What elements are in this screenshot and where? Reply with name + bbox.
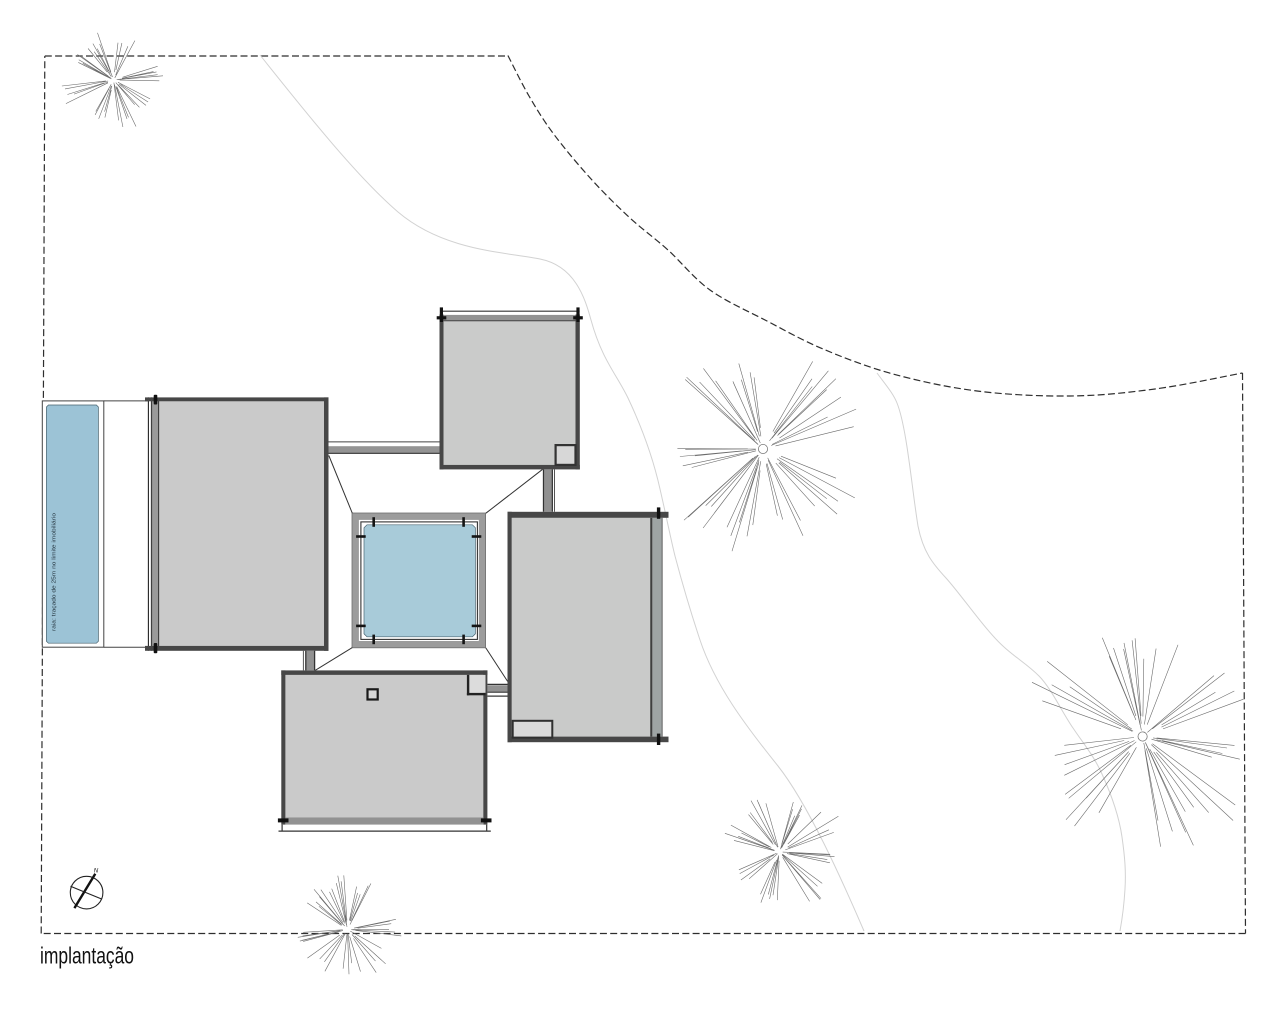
svg-text:N: N [94,867,99,874]
svg-text:implantação: implantação [40,943,134,969]
svg-text:raia: traçado de 25m no limite: raia: traçado de 25m no limite imobiliár… [52,513,58,631]
